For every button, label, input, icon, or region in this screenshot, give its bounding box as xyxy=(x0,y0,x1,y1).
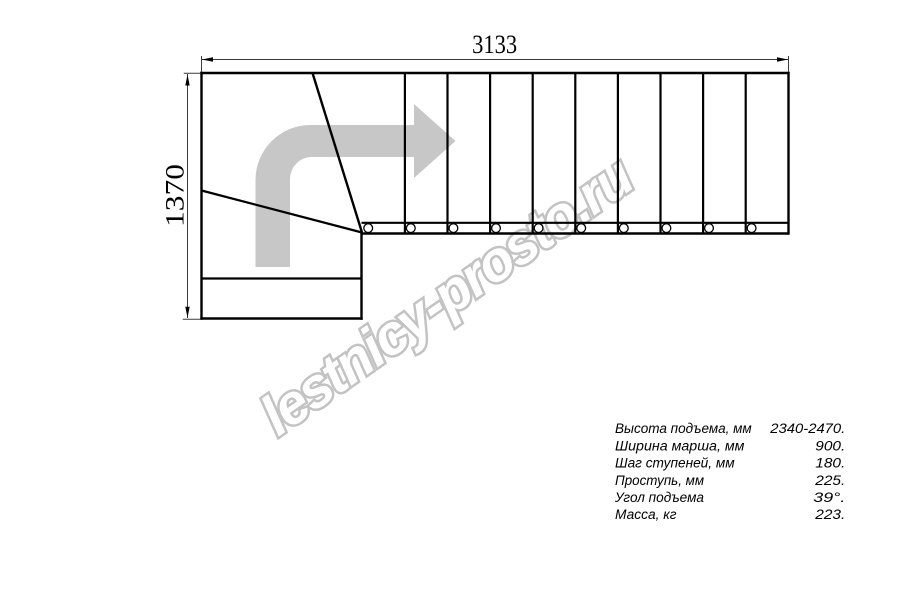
svg-text:39°.: 39°. xyxy=(813,490,845,506)
svg-text:900.: 900. xyxy=(815,438,845,454)
svg-text:180.: 180. xyxy=(815,456,845,472)
svg-text:Шаг ступеней, мм: Шаг ступеней, мм xyxy=(615,456,735,472)
svg-text:Масса, кг: Масса, кг xyxy=(615,507,677,523)
svg-text:Высота подъема, мм: Высота подъема, мм xyxy=(615,421,752,437)
svg-text:3133: 3133 xyxy=(472,29,517,59)
svg-text:Проступь, мм: Проступь, мм xyxy=(615,473,704,489)
svg-text:225.: 225. xyxy=(814,473,845,489)
svg-text:Угол подъема: Угол подъема xyxy=(614,490,704,506)
svg-text:1370: 1370 xyxy=(160,164,190,227)
svg-text:2340-2470.: 2340-2470. xyxy=(769,421,845,437)
svg-text:Ширина марша, мм: Ширина марша, мм xyxy=(615,438,745,454)
svg-text:223.: 223. xyxy=(814,507,845,523)
